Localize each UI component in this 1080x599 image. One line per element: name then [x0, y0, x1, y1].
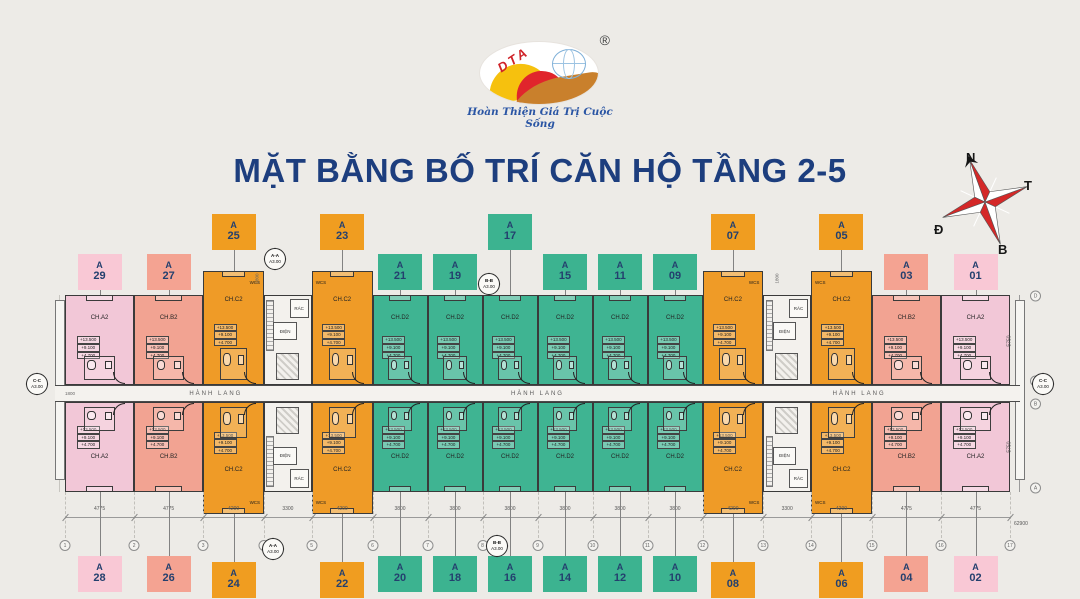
corridor: 1800 HÀNH LANG HÀNH LANG HÀNH LANG	[55, 385, 1020, 402]
unit-callout-a01: A01	[954, 254, 998, 290]
unit-type-label: CH.C2	[704, 467, 763, 473]
unit-callout-a18: A18	[433, 556, 477, 592]
unit-type-label: CH.C2	[204, 297, 263, 303]
unit-a08: A08CH.C2+13.500+9.100+4.700WCS	[703, 402, 764, 492]
unit-callout-a23: A23	[320, 214, 364, 250]
trash-room: RÁC	[789, 299, 808, 318]
unit-box: CH.C2+13.500+9.100+4.700WCS	[312, 271, 373, 385]
bathroom	[828, 348, 855, 379]
unit-a03: A03CH.B2+13.500+9.100+4.700	[872, 295, 941, 385]
unit-box: CH.B2+13.500+9.100+4.700	[872, 402, 941, 492]
unit-type-label: CH.B2	[873, 454, 940, 460]
bathroom	[960, 407, 991, 432]
grid-bubble-10: 10	[587, 540, 598, 551]
unit-a26: A26CH.B2+13.500+9.100+4.700	[134, 402, 203, 492]
unit-type-label: CH.D2	[539, 315, 592, 321]
unit-box: CH.D2+13.500+9.100+4.700	[648, 402, 703, 492]
corridor-label: HÀNH LANG	[511, 391, 564, 397]
section-marker-aa-bottom: A-AA3.00	[260, 536, 286, 562]
unit-callout-a26: A26	[147, 556, 191, 592]
dim-value: 3300	[763, 506, 811, 512]
bathroom	[891, 356, 922, 381]
unit-callout-a21: A21	[378, 254, 422, 290]
unit-type-label: CH.A2	[942, 454, 1009, 460]
section-marker-cc-right: C-CA3.00	[1030, 371, 1056, 397]
unit-box: CH.C2+13.500+9.100+4.700WCS	[703, 271, 764, 385]
unit-box: CH.A2+13.500+9.100+4.700	[65, 295, 134, 385]
unit-a23: A23CH.C2+13.500+9.100+4.700WCS	[312, 295, 373, 385]
door-arc-icon	[182, 403, 194, 415]
corridor-label: HÀNH LANG	[833, 391, 886, 397]
elevator-shaft	[276, 407, 299, 433]
logo-tagline: Hoàn Thiện Giá Trị Cuộc Sống	[460, 106, 620, 130]
electrical-room: ĐIỆN	[773, 447, 797, 465]
logo-ellipse: DTA	[480, 42, 598, 104]
door-arc-icon	[113, 372, 125, 384]
grid-bubble-7: 7	[422, 540, 433, 551]
door-arc-icon	[628, 372, 640, 384]
unit-box: CH.B2+13.500+9.100+4.700	[872, 295, 941, 385]
unit-box: CH.C2+13.500+9.100+4.700WCS	[203, 271, 264, 385]
unit-type-label: CH.B2	[135, 454, 202, 460]
right-dim-bottom: 5750	[1007, 441, 1013, 452]
door-arc-icon	[573, 372, 585, 384]
unit-box: CH.C2+13.500+9.100+4.700WCS	[703, 402, 764, 514]
door-arc-icon	[244, 372, 256, 384]
trash-room: RÁC	[789, 469, 808, 488]
balcony	[330, 271, 354, 277]
unit-callout-a02: A02	[954, 556, 998, 592]
unit-a05: A05CH.C2+13.500+9.100+4.700WCS	[811, 295, 872, 385]
unit-callout-a11: A11	[598, 254, 642, 290]
door-arc-icon	[683, 403, 695, 415]
elevation-box: +13.500+9.100+4.700	[214, 324, 237, 347]
unit-a19: A19CH.D2+13.500+9.100+4.700	[428, 295, 483, 385]
grid-bubble-5: 5	[306, 540, 317, 551]
core-box: RÁCĐIỆN	[763, 295, 811, 385]
grid-bubble-14: 14	[806, 540, 817, 551]
unit-box: CH.A2+13.500+9.100+4.700	[65, 402, 134, 492]
section-marker-bb-top: B-BA3.00	[476, 271, 502, 297]
core-box: RÁCĐIỆN	[264, 402, 312, 492]
unit-a20: A20CH.D2+13.500+9.100+4.700	[373, 402, 428, 492]
unit-type-label: CH.A2	[66, 315, 133, 321]
door-arc-icon	[518, 403, 530, 415]
bathroom	[153, 356, 184, 381]
unit-callout-a14: A14	[543, 556, 587, 592]
unit-callout-a25: A25	[212, 214, 256, 250]
grid-bubble-a: A	[1030, 483, 1041, 494]
compass-label-d: Đ	[934, 222, 943, 237]
unit-callout-a15: A15	[543, 254, 587, 290]
unit-box: CH.A2+13.500+9.100+4.700	[941, 295, 1010, 385]
unit-a01: A01CH.A2+13.500+9.100+4.700	[941, 295, 1010, 385]
grid-bubble-13: 13	[758, 540, 769, 551]
grid-bubble-11: 11	[642, 540, 653, 551]
unit-a22: A22CH.C2+13.500+9.100+4.700WCS	[312, 402, 373, 492]
unit-box: CH.D2+13.500+9.100+4.700	[593, 402, 648, 492]
unit-callout-a20: A20	[378, 556, 422, 592]
unit-callout-a16: A16	[488, 556, 532, 592]
door-arc-icon	[463, 403, 475, 415]
balcony	[664, 295, 685, 301]
electrical-room: ĐIỆN	[773, 322, 797, 340]
unit-a17: A17CH.D2+13.500+9.100+4.700	[483, 295, 538, 385]
grid-bubble-9: 9	[532, 540, 543, 551]
grid-bubble-17: 17	[1005, 540, 1016, 551]
unit-box: CH.C2+13.500+9.100+4.700WCS	[312, 402, 373, 514]
wcs-label: WCS	[815, 280, 826, 285]
door-arc-icon	[518, 372, 530, 384]
grid-bubble-d: D	[1030, 291, 1041, 302]
grid-bubble-1: 1	[60, 540, 71, 551]
unit-box: CH.D2+13.500+9.100+4.700	[593, 295, 648, 385]
unit-type-label: CH.C2	[313, 297, 372, 303]
unit-box: CH.B2+13.500+9.100+4.700	[134, 402, 203, 492]
trash-room: RÁC	[290, 469, 309, 488]
unit-type-label: CH.A2	[942, 315, 1009, 321]
door-arc-icon	[244, 403, 256, 415]
trash-room: RÁC	[290, 299, 309, 318]
core-entry-dim: 1800	[255, 273, 260, 283]
unit-a21: A21CH.D2+13.500+9.100+4.700	[373, 295, 428, 385]
unit-box: CH.C2+13.500+9.100+4.700WCS	[811, 402, 872, 514]
unit-callout-a12: A12	[598, 556, 642, 592]
unit-box: CH.A2+13.500+9.100+4.700	[941, 402, 1010, 492]
dim-value: 4200	[312, 506, 373, 512]
unit-type-label: CH.D2	[484, 315, 537, 321]
unit-type-label: CH.D2	[374, 315, 427, 321]
balcony	[893, 295, 920, 301]
wcs-label: WCS	[316, 500, 327, 505]
unit-a27: A27CH.B2+13.500+9.100+4.700	[134, 295, 203, 385]
stair-core: RÁCĐIỆN	[264, 402, 312, 492]
elevation-box: +13.500+9.100+4.700	[821, 324, 844, 347]
unit-callout-a24: A24	[212, 562, 256, 598]
unit-a29: A29CH.A2+13.500+9.100+4.700	[65, 295, 134, 385]
door-arc-icon	[852, 372, 864, 384]
grid-bubble-3: 3	[198, 540, 209, 551]
unit-a10: A10CH.D2+13.500+9.100+4.700	[648, 402, 703, 492]
unit-a04: A04CH.B2+13.500+9.100+4.700	[872, 402, 941, 492]
unit-type-label: CH.D2	[594, 454, 647, 460]
door-arc-icon	[573, 403, 585, 415]
grid-bubble-16: 16	[935, 540, 946, 551]
unit-a06: A06CH.C2+13.500+9.100+4.700WCS	[811, 402, 872, 492]
unit-a02: A02CH.A2+13.500+9.100+4.700	[941, 402, 1010, 492]
right-dim-top: 5750	[1007, 335, 1013, 346]
unit-type-label: CH.D2	[649, 454, 702, 460]
door-arc-icon	[920, 372, 932, 384]
elevator-shaft	[276, 353, 299, 379]
unit-callout-a07: A07	[711, 214, 755, 250]
door-arc-icon	[628, 403, 640, 415]
page-title: MẶT BẰNG BỐ TRÍ CĂN HỘ TẦNG 2-5	[0, 152, 1080, 190]
unit-callout-a17: A17	[488, 214, 532, 250]
compass-label-t: T	[1024, 178, 1032, 193]
compass-label-n: N	[966, 150, 975, 165]
wcs-label: WCS	[815, 500, 826, 505]
bathroom	[153, 407, 184, 432]
unit-type-label: CH.B2	[873, 315, 940, 321]
unit-type-label: CH.D2	[429, 454, 482, 460]
bathroom	[828, 407, 855, 438]
door-arc-icon	[920, 403, 932, 415]
stair-core: RÁCĐIỆN	[264, 295, 312, 385]
unit-callout-a27: A27	[147, 254, 191, 290]
unit-callout-a10: A10	[653, 556, 697, 592]
wcs-label: WCS	[250, 500, 261, 505]
door-arc-icon	[743, 403, 755, 415]
unit-a11: A11CH.D2+13.500+9.100+4.700	[593, 295, 648, 385]
grid-bubble-15: 15	[866, 540, 877, 551]
core-box: RÁCĐIỆN	[763, 402, 811, 492]
unit-box: CH.D2+13.500+9.100+4.700	[483, 402, 538, 492]
globe-icon	[552, 49, 586, 79]
unit-type-label: CH.D2	[374, 454, 427, 460]
door-arc-icon	[408, 403, 420, 415]
corridor-label: HÀNH LANG	[189, 391, 242, 397]
unit-a09: A09CH.D2+13.500+9.100+4.700	[648, 295, 703, 385]
unit-box: CH.D2+13.500+9.100+4.700	[428, 295, 483, 385]
corridor-dim: 1800	[65, 391, 75, 396]
compass-rose: N T Đ B	[932, 152, 1038, 264]
balcony	[444, 295, 465, 301]
balcony	[962, 295, 989, 301]
unit-type-label: CH.D2	[594, 315, 647, 321]
unit-a24: A24CH.C2+13.500+9.100+4.700WCS	[203, 402, 264, 492]
balcony	[721, 271, 745, 277]
unit-type-label: CH.D2	[649, 315, 702, 321]
unit-box: CH.D2+13.500+9.100+4.700	[483, 295, 538, 385]
registered-mark: ®	[600, 32, 610, 48]
unit-a07: A07CH.C2+13.500+9.100+4.700WCS	[703, 295, 764, 385]
door-arc-icon	[852, 403, 864, 415]
unit-callout-a22: A22	[320, 562, 364, 598]
unit-box: CH.D2+13.500+9.100+4.700	[648, 295, 703, 385]
unit-a25: A25CH.C2+13.500+9.100+4.700WCS	[203, 295, 264, 385]
grid-bubble-6: 6	[367, 540, 378, 551]
unit-a12: A12CH.D2+13.500+9.100+4.700	[593, 402, 648, 492]
unit-type-label: CH.B2	[135, 315, 202, 321]
unit-box: CH.C2+13.500+9.100+4.700WCS	[811, 271, 872, 385]
balcony	[499, 295, 520, 301]
unit-box: CH.D2+13.500+9.100+4.700	[538, 402, 593, 492]
compass-star-icon	[932, 152, 1038, 252]
stair-core: RÁCĐIỆN	[763, 402, 811, 492]
elevator-shaft	[775, 353, 798, 379]
wcs-label: WCS	[316, 280, 327, 285]
plan-row-top: A29CH.A2+13.500+9.100+4.700A27CH.B2+13.5…	[65, 295, 1010, 385]
dim-value: 4200	[811, 506, 872, 512]
unit-a18: A18CH.D2+13.500+9.100+4.700	[428, 402, 483, 492]
unit-box: CH.D2+13.500+9.100+4.700	[373, 402, 428, 492]
door-arc-icon	[182, 372, 194, 384]
unit-a16: A16CH.D2+13.500+9.100+4.700	[483, 402, 538, 492]
door-arc-icon	[683, 372, 695, 384]
grid-bubble-12: 12	[697, 540, 708, 551]
bathroom	[84, 356, 115, 381]
bathroom	[220, 348, 247, 379]
unit-type-label: CH.C2	[812, 467, 871, 473]
unit-type-label: CH.D2	[429, 315, 482, 321]
bathroom	[220, 407, 247, 438]
balcony	[155, 295, 182, 301]
unit-callout-a06: A06	[819, 562, 863, 598]
bathroom	[84, 407, 115, 432]
unit-a15: A15CH.D2+13.500+9.100+4.700	[538, 295, 593, 385]
unit-callout-a08: A08	[711, 562, 755, 598]
elevator-shaft	[775, 407, 798, 433]
door-arc-icon	[352, 403, 364, 415]
door-arc-icon	[989, 403, 1001, 415]
grid-bubble-2: 2	[129, 540, 140, 551]
door-arc-icon	[989, 372, 1001, 384]
floor-plan-page: DTA ® Hoàn Thiện Giá Trị Cuộc Sống MẶT B…	[0, 0, 1080, 599]
dta-logo: DTA ® Hoàn Thiện Giá Trị Cuộc Sống	[460, 20, 620, 132]
balcony	[554, 295, 575, 301]
unit-type-label: CH.C2	[812, 297, 871, 303]
stair-core: RÁCĐIỆN	[763, 295, 811, 385]
unit-box: CH.C2+13.500+9.100+4.700WCS	[203, 402, 264, 514]
unit-box: CH.D2+13.500+9.100+4.700	[538, 295, 593, 385]
unit-box: CH.D2+13.500+9.100+4.700	[428, 402, 483, 492]
door-arc-icon	[113, 403, 125, 415]
balcony	[222, 271, 246, 277]
unit-type-label: CH.A2	[66, 454, 133, 460]
unit-box: CH.D2+13.500+9.100+4.700	[373, 295, 428, 385]
electrical-room: ĐIỆN	[273, 322, 297, 340]
bathroom	[960, 356, 991, 381]
compass-label-b: B	[998, 242, 1007, 257]
core-entry-dim: 1800	[775, 273, 780, 283]
section-marker-aa-top: A-AA3.00	[262, 246, 288, 272]
balcony	[609, 295, 630, 301]
unit-callout-a09: A09	[653, 254, 697, 290]
bathroom	[891, 407, 922, 432]
unit-callout-a05: A05	[819, 214, 863, 250]
dim-value: 4200	[203, 506, 264, 512]
balcony	[389, 295, 410, 301]
door-arc-icon	[408, 372, 420, 384]
door-arc-icon	[352, 372, 364, 384]
grid-bubble-b: B	[1030, 399, 1041, 410]
dim-value: 3300	[264, 506, 312, 512]
unit-callout-a29: A29	[78, 254, 122, 290]
door-arc-icon	[743, 372, 755, 384]
section-marker-bb-bottom: B-BA3.00	[484, 533, 510, 559]
unit-a14: A14CH.D2+13.500+9.100+4.700	[538, 402, 593, 492]
unit-type-label: CH.C2	[204, 467, 263, 473]
dim-value: 4200	[703, 506, 764, 512]
section-marker-cc-left: C-CA3.00	[24, 371, 50, 397]
unit-box: CH.B2+13.500+9.100+4.700	[134, 295, 203, 385]
unit-type-label: CH.D2	[484, 454, 537, 460]
unit-a28: A28CH.A2+13.500+9.100+4.700	[65, 402, 134, 492]
wcs-label: WCS	[749, 280, 760, 285]
door-arc-icon	[463, 372, 475, 384]
unit-type-label: CH.C2	[313, 467, 372, 473]
unit-callout-a04: A04	[884, 556, 928, 592]
unit-callout-a03: A03	[884, 254, 928, 290]
unit-type-label: CH.D2	[539, 454, 592, 460]
balcony	[830, 271, 854, 277]
bottom-total-dim: 62900	[1014, 521, 1028, 527]
unit-callout-a19: A19	[433, 254, 477, 290]
elevation-box: +13.500+9.100+4.700	[322, 324, 345, 347]
unit-type-label: CH.C2	[704, 297, 763, 303]
wcs-label: WCS	[749, 500, 760, 505]
balcony	[86, 295, 113, 301]
plan-row-bottom: A28CH.A2+13.500+9.100+4.700A26CH.B2+13.5…	[65, 402, 1010, 492]
electrical-room: ĐIỆN	[273, 447, 297, 465]
unit-callout-a28: A28	[78, 556, 122, 592]
core-box: RÁCĐIỆN	[264, 295, 312, 385]
elevation-box: +13.500+9.100+4.700	[713, 324, 736, 347]
